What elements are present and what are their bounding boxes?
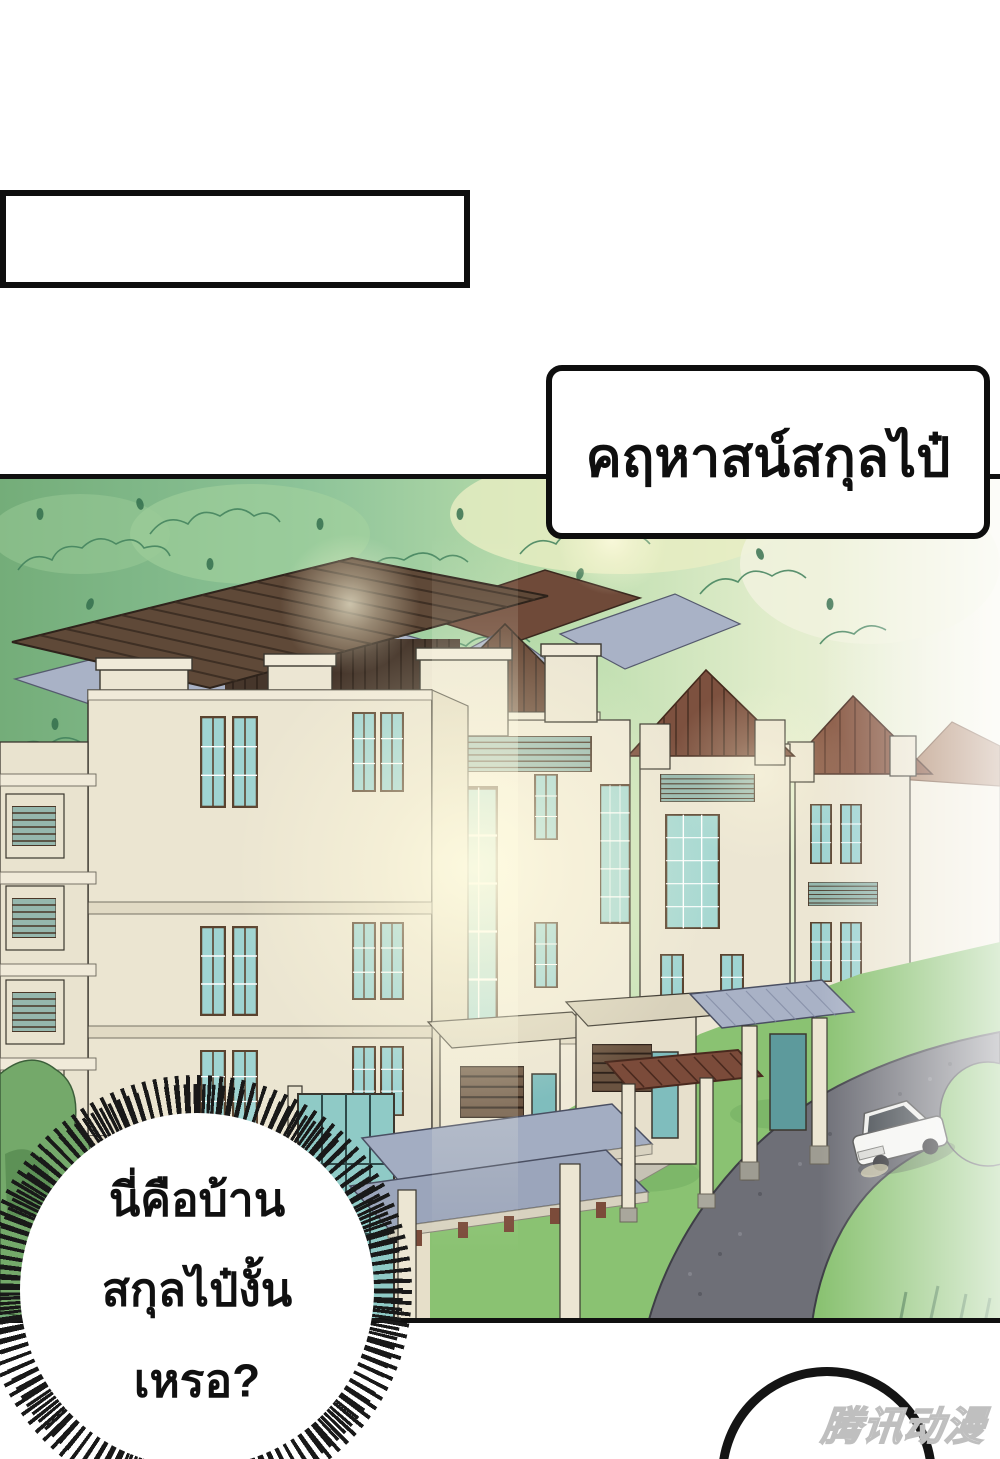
- caption-text: คฤหาสน์สกุลไป๋: [586, 404, 951, 500]
- bubble-line: เหรอ?: [17, 1356, 377, 1404]
- bubble-line: นี่คือบ้าน: [17, 1176, 377, 1224]
- speech-bubble-burst: นี่คือบ้าน สกุลไป๋งั้น เหรอ?: [0, 1075, 412, 1459]
- caption-box-mansion: คฤหาสน์สกุลไป๋: [546, 365, 990, 539]
- watermark: 腾讯动漫: [819, 1394, 989, 1452]
- bubble-line: สกุลไป๋งั้น: [17, 1266, 377, 1314]
- bubble-text: นี่คือบ้าน สกุลไป๋งั้น เหรอ?: [17, 1176, 377, 1405]
- caption-box-empty: [0, 190, 470, 288]
- comic-page: คฤหาสน์สกุลไป๋ นี่คือบ้าน สกุลไป๋งั้น เห…: [0, 0, 1000, 1459]
